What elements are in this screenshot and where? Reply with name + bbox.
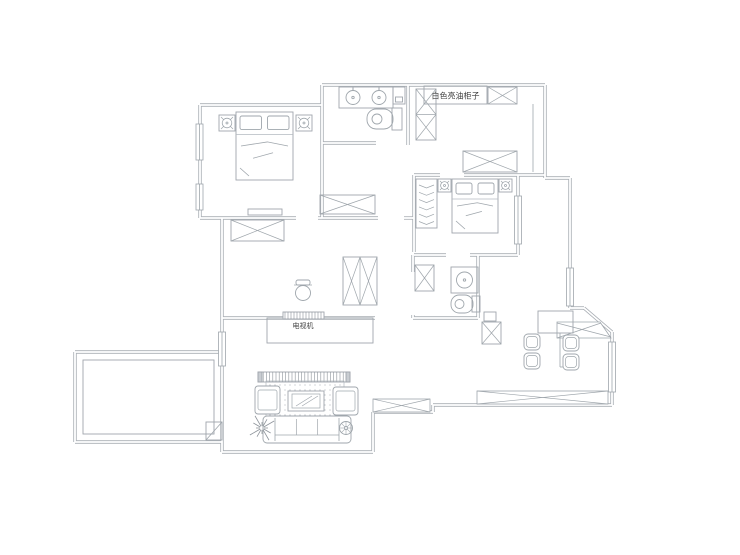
floor-plan-canvas: 白色亮油柜子电视机 bbox=[0, 0, 740, 555]
toilet-bowl bbox=[451, 295, 473, 313]
sink-icon bbox=[463, 279, 465, 281]
rug-dot bbox=[309, 389, 310, 390]
bed-fold bbox=[457, 203, 493, 206]
rug-dot bbox=[329, 414, 330, 415]
pillow bbox=[240, 116, 262, 130]
rug-dot bbox=[279, 414, 280, 415]
rug-dot bbox=[319, 414, 320, 415]
bath-counter bbox=[339, 87, 393, 108]
rug-dot bbox=[324, 414, 325, 415]
hanger-icon bbox=[419, 214, 434, 217]
tv-bench-end bbox=[346, 372, 350, 382]
rug-dot bbox=[284, 394, 285, 395]
rug-dot bbox=[339, 384, 340, 385]
toilet-icon bbox=[455, 300, 464, 309]
bed-fold bbox=[253, 153, 273, 158]
rug-dot bbox=[329, 404, 330, 405]
rug-dot bbox=[284, 389, 285, 390]
tv-bench bbox=[258, 372, 350, 382]
toilet-tank bbox=[392, 108, 402, 130]
bed-fold bbox=[241, 142, 288, 146]
bed-fold bbox=[240, 168, 249, 176]
hanger-icon bbox=[419, 207, 434, 210]
toilet-icon bbox=[372, 114, 382, 124]
vase-icon bbox=[296, 286, 311, 301]
rug-dot bbox=[329, 399, 330, 400]
rug-dot bbox=[329, 409, 330, 410]
dining-small-box bbox=[484, 312, 496, 321]
rug-dot bbox=[314, 384, 315, 385]
vase-lid bbox=[296, 280, 310, 285]
rug-dot bbox=[324, 389, 325, 390]
pillow bbox=[268, 116, 290, 130]
rug-dot bbox=[274, 384, 275, 385]
bed-fold bbox=[466, 211, 482, 215]
balcony-inner bbox=[83, 360, 214, 434]
rug-dot bbox=[324, 404, 325, 405]
rug-dot bbox=[324, 409, 325, 410]
rug-dot bbox=[304, 384, 305, 385]
hanger-icon bbox=[419, 185, 434, 188]
rug-dot bbox=[304, 389, 305, 390]
rug-dot bbox=[304, 414, 305, 415]
tv-bench-end bbox=[258, 372, 262, 382]
rug-dot bbox=[309, 414, 310, 415]
rug-dot bbox=[289, 414, 290, 415]
tv-label: 电视机 bbox=[293, 321, 314, 330]
rug-dot bbox=[284, 399, 285, 400]
rug-dot bbox=[299, 384, 300, 385]
hanger-icon bbox=[419, 222, 434, 225]
appliance-box-inner bbox=[396, 97, 403, 102]
sink-icon bbox=[457, 272, 473, 288]
pillow bbox=[456, 183, 472, 194]
bed-bench bbox=[248, 209, 282, 215]
sink-icon bbox=[378, 96, 380, 98]
rug-dot bbox=[329, 384, 330, 385]
rug-dot bbox=[299, 414, 300, 415]
rug-dot bbox=[329, 389, 330, 390]
rug-dot bbox=[324, 384, 325, 385]
rug-dot bbox=[314, 414, 315, 415]
hanger-icon bbox=[419, 200, 434, 203]
rug-dot bbox=[294, 384, 295, 385]
rug-dot bbox=[279, 384, 280, 385]
washbasin bbox=[451, 267, 478, 293]
sink-icon bbox=[372, 91, 386, 105]
lamp-icon bbox=[441, 182, 449, 190]
appliance-box bbox=[393, 87, 405, 104]
rug-dot bbox=[324, 394, 325, 395]
lamp-icon bbox=[299, 118, 309, 128]
rug-dot bbox=[274, 414, 275, 415]
floor-plan: 白色亮油柜子电视机 bbox=[0, 0, 740, 555]
rug-dot bbox=[269, 414, 270, 415]
lamp-icon bbox=[222, 118, 232, 128]
hanger-icon bbox=[419, 192, 434, 195]
rug-dot bbox=[294, 414, 295, 415]
rug-dot bbox=[284, 414, 285, 415]
rug-dot bbox=[289, 384, 290, 385]
lamp-icon bbox=[502, 182, 510, 190]
bed-fold bbox=[456, 221, 465, 229]
double-bed bbox=[236, 112, 293, 180]
sink-icon bbox=[346, 91, 360, 105]
rug-dot bbox=[319, 389, 320, 390]
rug-dot bbox=[334, 384, 335, 385]
sink-icon bbox=[352, 96, 354, 98]
rug-dot bbox=[324, 399, 325, 400]
rug-dot bbox=[284, 409, 285, 410]
pillow bbox=[478, 183, 494, 194]
rug-dot bbox=[284, 384, 285, 385]
tv-niche bbox=[267, 318, 373, 343]
wardrobe bbox=[416, 179, 437, 228]
cabinet-label: 白色亮油柜子 bbox=[432, 91, 480, 101]
rug-dot bbox=[299, 389, 300, 390]
rug-dot bbox=[284, 404, 285, 405]
rug-dot bbox=[294, 389, 295, 390]
sofa bbox=[263, 416, 351, 443]
rug-dot bbox=[329, 394, 330, 395]
rug-dot bbox=[319, 384, 320, 385]
rug-dot bbox=[289, 389, 290, 390]
rug-dot bbox=[269, 384, 270, 385]
rug-dot bbox=[309, 384, 310, 385]
rug-dot bbox=[314, 389, 315, 390]
toilet-bowl bbox=[367, 109, 393, 129]
